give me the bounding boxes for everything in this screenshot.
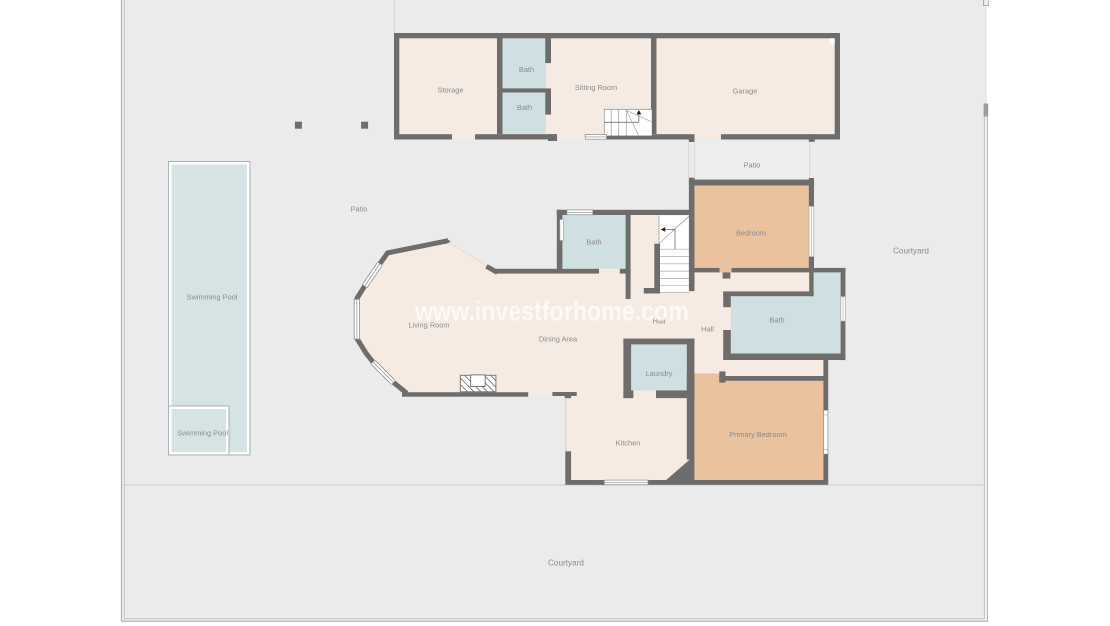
svg-text:Courtyard: Courtyard [548, 559, 584, 568]
svg-text:Garage: Garage [733, 87, 758, 96]
svg-text:Patio: Patio [744, 161, 761, 170]
svg-text:Bath: Bath [769, 316, 784, 325]
svg-text:Patio: Patio [351, 205, 368, 214]
svg-text:Dining Area: Dining Area [539, 335, 578, 344]
svg-text:Bedroom: Bedroom [736, 229, 766, 238]
svg-text:Laundry: Laundry [646, 369, 673, 378]
svg-text:Sitting Room: Sitting Room [575, 83, 617, 92]
svg-text:Hall: Hall [701, 325, 714, 334]
svg-text:Storage: Storage [438, 86, 464, 95]
svg-text:Swimming Pool: Swimming Pool [187, 293, 238, 302]
svg-text:Swimming Pool: Swimming Pool [177, 429, 228, 438]
svg-text:www.investforhome.com: www.investforhome.com [414, 296, 689, 327]
svg-text:Bath: Bath [586, 238, 601, 247]
svg-text:Courtyard: Courtyard [893, 247, 929, 256]
svg-text:Bath: Bath [519, 65, 534, 74]
svg-text:Kitchen: Kitchen [616, 439, 641, 448]
svg-text:Bath: Bath [517, 103, 532, 112]
svg-text:Primary Bedroom: Primary Bedroom [729, 430, 787, 439]
